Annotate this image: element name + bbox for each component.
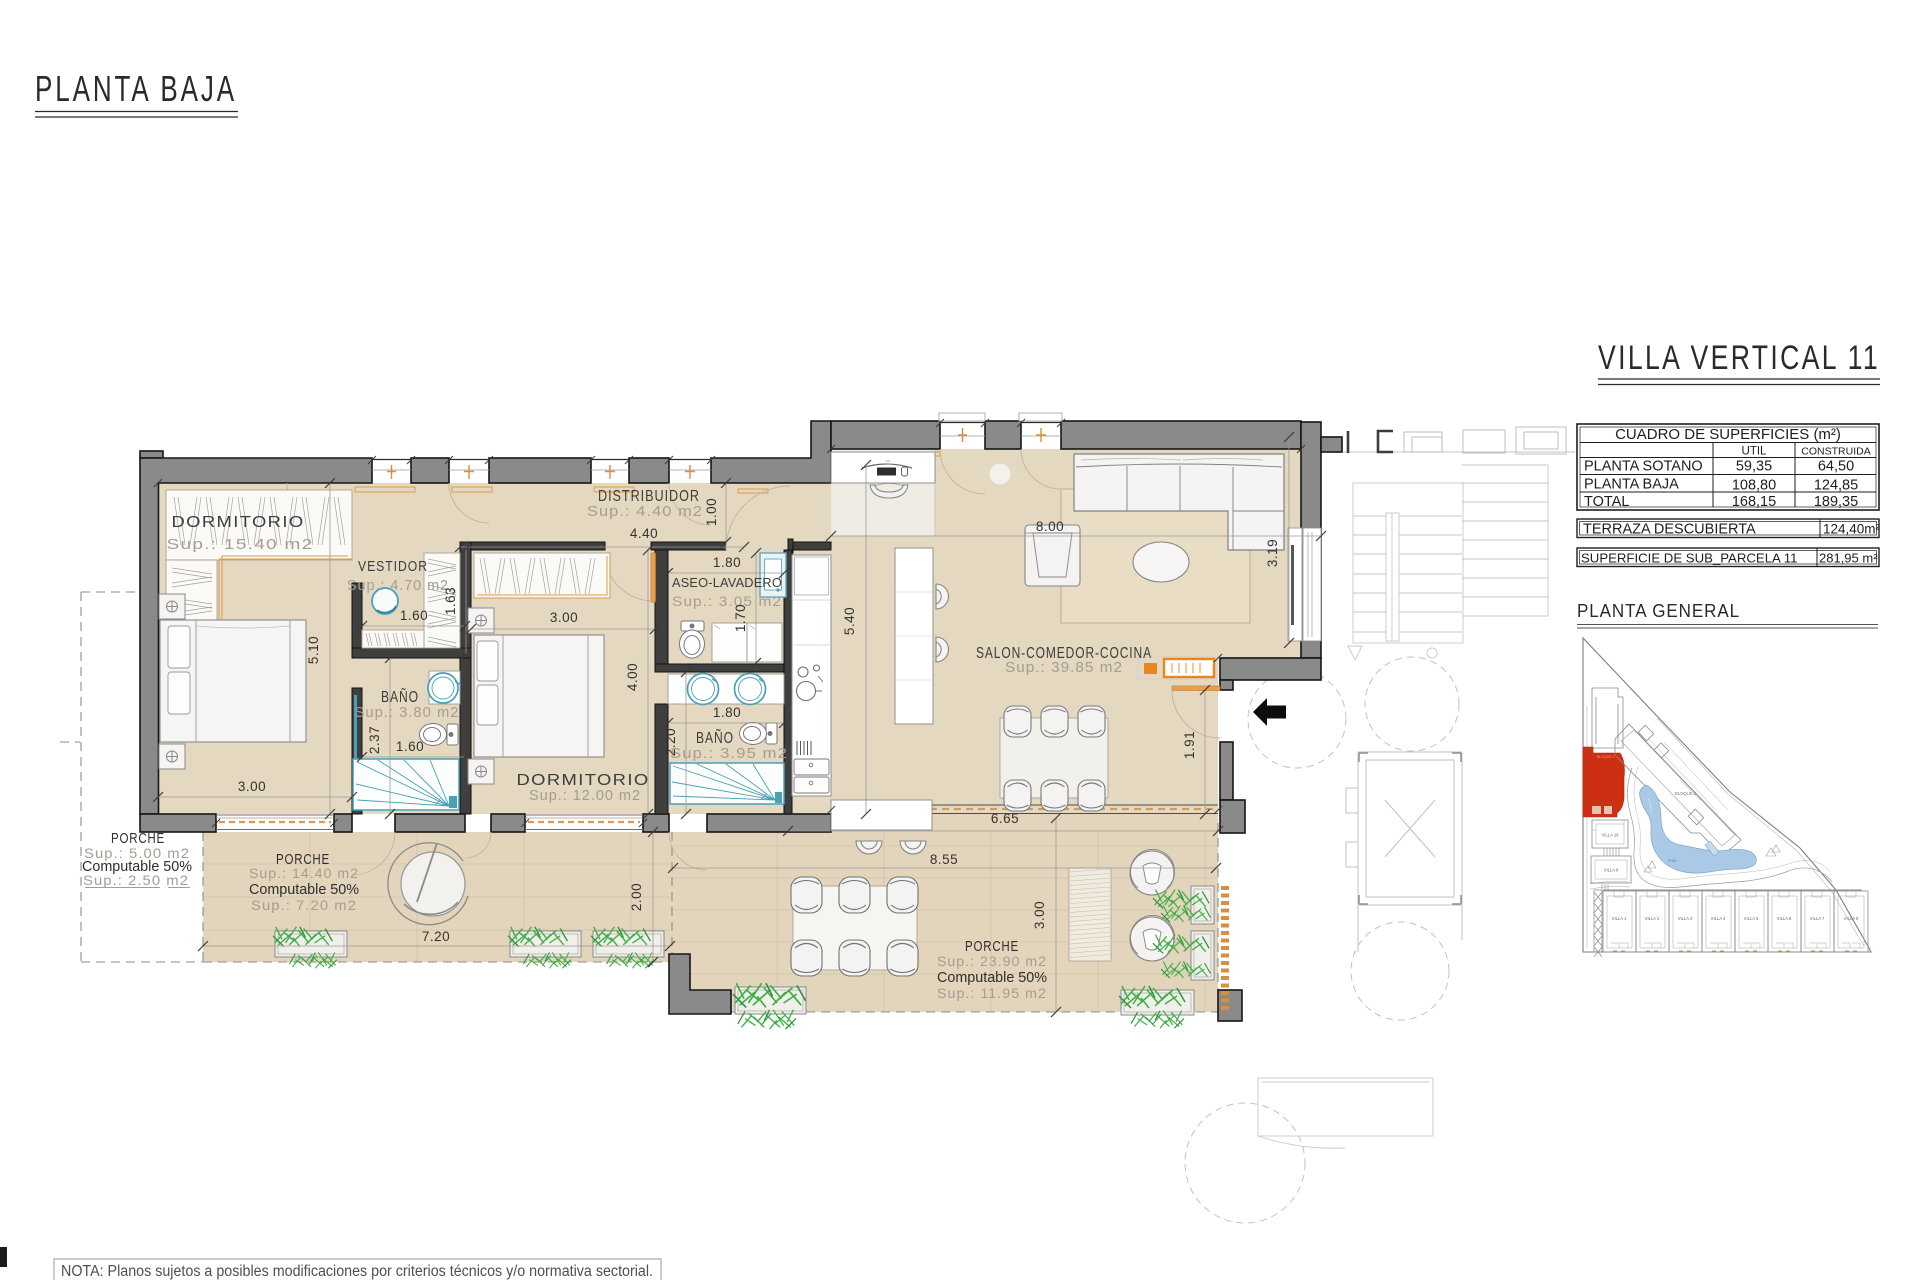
svg-text:Sup.: 12.00 m2: Sup.: 12.00 m2: [529, 787, 641, 804]
svg-text:1.00: 1.00: [704, 498, 719, 526]
svg-text:2.00: 2.00: [629, 883, 644, 911]
svg-text:1.70: 1.70: [733, 604, 748, 632]
svg-text:BAÑO: BAÑO: [696, 727, 734, 747]
svg-text:5.10: 5.10: [306, 636, 321, 664]
svg-text:CUADRO DE SUPERFICIES (m²): CUADRO DE SUPERFICIES (m²): [1615, 426, 1841, 443]
svg-text:Sup.: 11.95 m2: Sup.: 11.95 m2: [937, 985, 1047, 1001]
svg-text:Sup.: 15.40 m2: Sup.: 15.40 m2: [167, 536, 314, 553]
svg-text:Computable 50%: Computable 50%: [937, 969, 1047, 986]
svg-text:Sup.: 3.05 m2: Sup.: 3.05 m2: [672, 593, 782, 609]
svg-text:TERRAZA DESCUBIERTA: TERRAZA DESCUBIERTA: [1583, 522, 1756, 538]
svg-text:124,85: 124,85: [1814, 478, 1858, 494]
svg-text:VESTIDOR: VESTIDOR: [358, 558, 428, 575]
svg-text:VILLA 10: VILLA 10: [1602, 833, 1620, 838]
svg-text:3.19: 3.19: [1265, 539, 1280, 567]
svg-text:Computable 50%: Computable 50%: [249, 881, 359, 898]
svg-text:Sup.: 4.40 m2: Sup.: 4.40 m2: [587, 503, 703, 520]
svg-text:VILLA 4: VILLA 4: [1711, 916, 1726, 921]
svg-text:VILLA 2: VILLA 2: [1645, 916, 1660, 921]
svg-text:PLANTA SOTANO: PLANTA SOTANO: [1584, 459, 1703, 475]
svg-text:281,95 m²: 281,95 m²: [1819, 551, 1878, 566]
svg-text:VILLA 6: VILLA 6: [1777, 916, 1792, 921]
svg-text:1.60: 1.60: [396, 739, 424, 754]
svg-text:BLOQUE 1: BLOQUE 1: [1597, 755, 1615, 759]
svg-text:108,80: 108,80: [1732, 478, 1776, 494]
svg-text:VILLA 7: VILLA 7: [1810, 916, 1825, 921]
svg-text:Sup.: 39.85 m2: Sup.: 39.85 m2: [1005, 659, 1123, 676]
svg-text:8.00: 8.00: [1036, 519, 1064, 534]
svg-text:3.00: 3.00: [238, 779, 266, 794]
svg-text:Sup.: 4.70 m2: Sup.: 4.70 m2: [347, 577, 449, 594]
svg-text:Sup.: 3.95 m2: Sup.: 3.95 m2: [670, 745, 788, 762]
svg-text:1.63: 1.63: [443, 587, 458, 615]
svg-text:5.40: 5.40: [842, 607, 857, 635]
svg-text:59,35: 59,35: [1736, 459, 1772, 475]
svg-text:Sup.: 7.20 m2: Sup.: 7.20 m2: [251, 897, 357, 913]
svg-text:VILLA 9: VILLA 9: [1604, 868, 1619, 873]
svg-text:SUPERFICIE DE SUB_PARCELA 11: SUPERFICIE DE SUB_PARCELA 11: [1581, 551, 1797, 566]
svg-text:UTIL: UTIL: [1742, 446, 1768, 458]
svg-text:1.91: 1.91: [1182, 731, 1197, 759]
svg-text:8.55: 8.55: [930, 852, 958, 867]
svg-text:1.60: 1.60: [400, 608, 428, 623]
svg-text:POOL: POOL: [1668, 859, 1677, 863]
svg-text:TOTAL: TOTAL: [1584, 494, 1629, 510]
svg-text:1.80: 1.80: [713, 705, 741, 720]
svg-text:124,40m²: 124,40m²: [1823, 522, 1881, 537]
svg-text:DORMITORIO: DORMITORIO: [172, 514, 305, 531]
svg-text:VILLA 5: VILLA 5: [1744, 916, 1759, 921]
svg-text:Sup.: 3.80 m2: Sup.: 3.80 m2: [355, 704, 460, 721]
svg-text:VILLA 3: VILLA 3: [1678, 916, 1693, 921]
svg-text:3.00: 3.00: [550, 610, 578, 625]
svg-text:2.20: 2.20: [663, 728, 678, 756]
svg-text:168,15: 168,15: [1732, 494, 1776, 510]
svg-text:1.80: 1.80: [713, 555, 741, 570]
svg-text:Sup.: 2.50 m2: Sup.: 2.50 m2: [83, 872, 189, 888]
svg-text:4.40: 4.40: [630, 526, 658, 541]
svg-text:Sup.: 14.40 m2: Sup.: 14.40 m2: [249, 865, 359, 881]
svg-text:2.37: 2.37: [367, 726, 382, 754]
svg-text:6.65: 6.65: [991, 811, 1019, 826]
svg-text:BAÑO: BAÑO: [381, 686, 419, 706]
svg-text:PLANTA BAJA: PLANTA BAJA: [1584, 477, 1679, 493]
svg-text:PLANTA BAJA: PLANTA BAJA: [35, 68, 237, 109]
svg-text:7.20: 7.20: [422, 929, 450, 944]
svg-text:ASEO-LAVADERO: ASEO-LAVADERO: [672, 575, 782, 590]
svg-text:VILLA 8: VILLA 8: [1844, 916, 1859, 921]
svg-text:4.00: 4.00: [625, 663, 640, 691]
svg-text:BLOQUE 2: BLOQUE 2: [1675, 791, 1697, 796]
svg-text:3.00: 3.00: [1032, 901, 1047, 929]
svg-text:NOTA: Planos sujetos a posible: NOTA: Planos sujetos a posibles modifica…: [61, 1263, 653, 1280]
svg-text:VILLA VERTICAL 11: VILLA VERTICAL 11: [1598, 339, 1880, 377]
svg-text:CONSTRUIDA: CONSTRUIDA: [1801, 446, 1870, 458]
svg-text:Sup.: 23.90 m2: Sup.: 23.90 m2: [937, 953, 1047, 969]
svg-text:PLANTA GENERAL: PLANTA GENERAL: [1577, 600, 1740, 621]
svg-text:VILLA 1: VILLA 1: [1612, 916, 1627, 921]
svg-text:64,50: 64,50: [1818, 459, 1854, 475]
svg-text:189,35: 189,35: [1814, 494, 1858, 510]
